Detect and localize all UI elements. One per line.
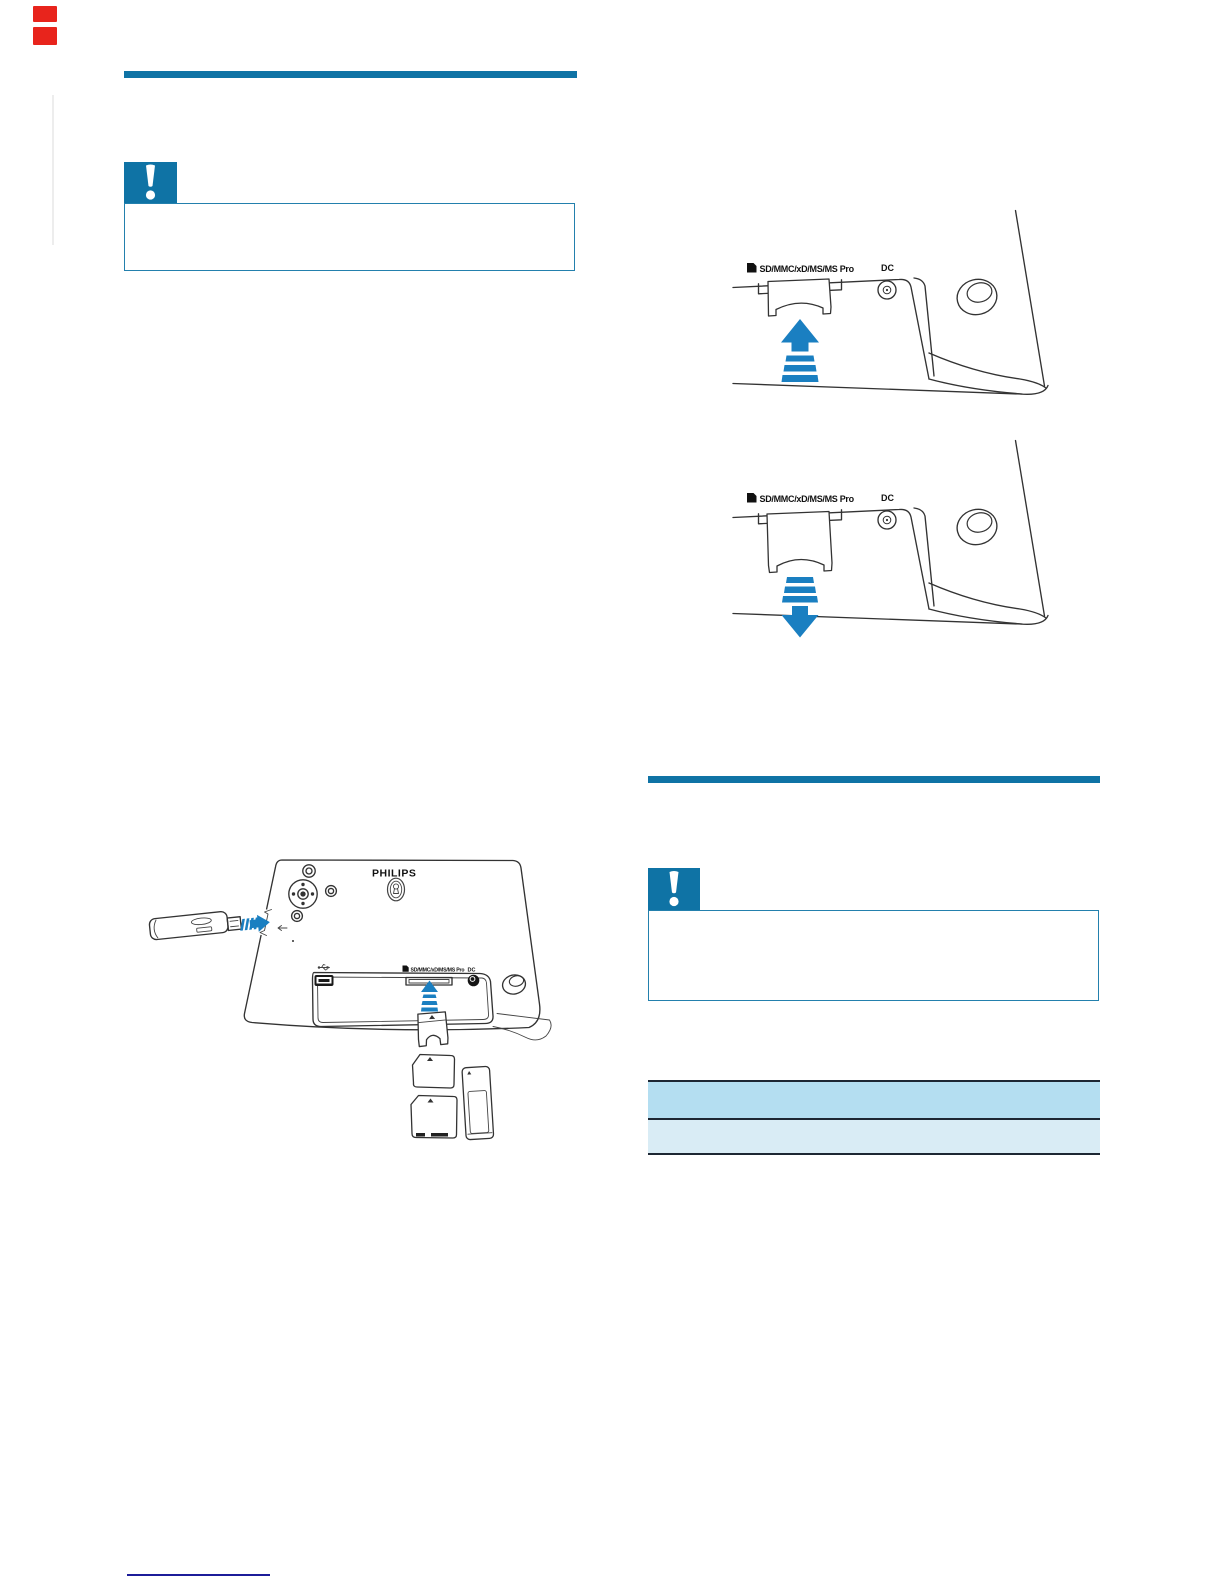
insert-arrow-icon [781,319,819,382]
rear-knob [953,505,1000,549]
figure-remove-card: SD/MMC/xD/MS/MS Pro DC [700,425,1120,640]
usb-flash-drive [149,907,271,943]
panel-slot-label: SD/MMC/xD/MS/MS Pro [411,968,465,974]
caution-icon-left [124,162,177,203]
dc-label: DC [881,263,894,273]
device-side-edge [1016,441,1045,617]
panel-dc-label: DC [468,968,476,974]
table-row [648,1120,1100,1153]
memory-card [768,279,831,316]
frame-back-illustration: PHILIPS [130,830,590,1160]
spec-table [648,1080,1100,1155]
memory-stick [462,1066,494,1140]
footer-link-rule [127,1574,270,1576]
figure-insert-card: SD/MMC/xD/MS/MS Pro DC [700,195,1120,410]
section-rule-right [648,776,1100,783]
memory-card-mmc [411,1096,457,1139]
caution-box-right [648,910,1099,1001]
slot-label: SD/MMC/xD/MS/MS Pro [760,494,855,504]
red-marker-bottom [33,27,57,45]
usb-port-arrow-marker [278,926,287,931]
memory-card-inserting [417,1012,448,1047]
remove-arrow-icon [782,577,819,638]
brand-wordmark: PHILIPS [372,868,416,880]
stand-wedge [493,1014,551,1040]
sd-card-icon [747,263,757,273]
caution-icon-right [648,868,700,910]
memory-card [767,512,832,573]
dc-jack [468,975,480,987]
connector-panel [313,973,494,1027]
table-header-row [648,1082,1100,1120]
dc-label: DC [881,493,894,503]
device-top-edge [733,279,929,379]
section-rule-left [124,71,577,78]
photo-frame-outline [244,860,540,1030]
dc-jack [878,281,896,299]
dc-jack [878,511,896,529]
rear-knob [501,973,527,996]
navigation-pad-icon [289,865,337,922]
device-side-edge [1016,211,1045,387]
sd-card-icon [747,493,757,503]
sd-card-icon [403,966,409,972]
caution-box-left [124,203,575,271]
rear-knob [953,275,1000,319]
keyhole-hanger-icon [388,878,405,901]
mini-usb-port [315,975,334,986]
page-edge-guide [52,95,54,245]
memory-card-sd [413,1055,455,1089]
red-marker-top [33,6,57,22]
usb-icon [318,965,329,971]
slot-label: SD/MMC/xD/MS/MS Pro [760,264,855,274]
manual-page: PHILIPS [0,0,1224,1584]
